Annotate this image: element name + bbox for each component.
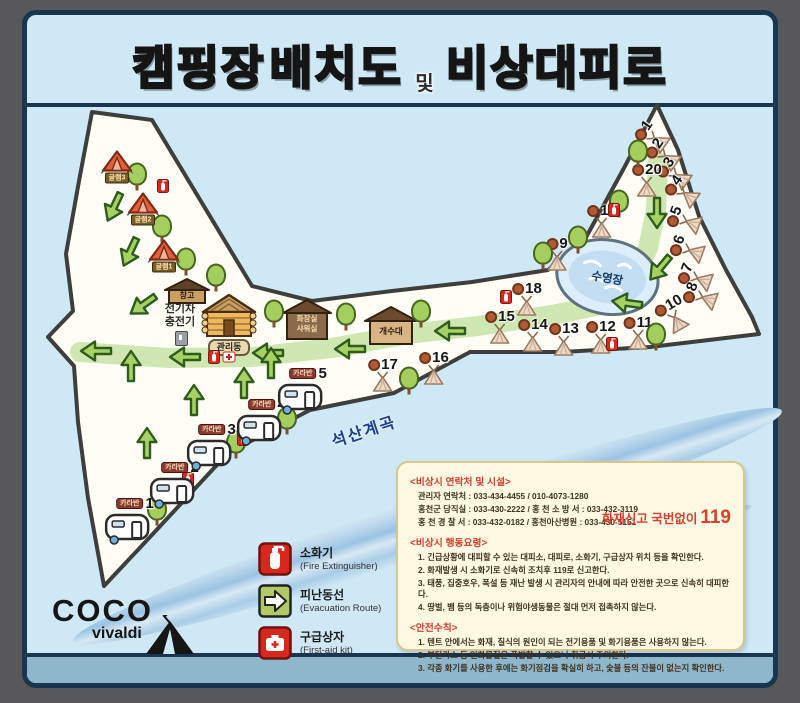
ev-charger-icon [175, 331, 188, 346]
action-line: 1. 긴급상황에 대피할 수 있는 대피소, 대피로, 소화기, 구급상자 위치… [418, 552, 731, 563]
map-stage: 수영장 창고 관리동 화장실 샤워실 [0, 0, 800, 703]
evacuation-route-icon [258, 584, 292, 618]
legend-item-fire-extinguisher: 소화기 (Fire Extinguisher) [258, 542, 381, 576]
fire-extinguisher-icon [258, 542, 292, 576]
legend-item-first-aid: 구급상자 (First-aid kit) [258, 626, 381, 660]
first-aid-icon [258, 626, 292, 660]
legend-fire-en: (Fire Extinguisher) [300, 561, 378, 572]
logo-coco-text: COCO [52, 595, 153, 626]
restroom-label-line1: 화장실 [281, 314, 333, 323]
sink-building: 개수대 [363, 306, 419, 346]
legend-evac-ko: 피난동선 [300, 588, 381, 602]
office-label: 관리동 [208, 339, 251, 356]
legend-fire-ko: 소화기 [300, 546, 378, 560]
ev-charger-label-line1: 전기차 [165, 303, 195, 315]
fire-call-number: 119 [700, 507, 731, 528]
ev-charger-label: 전기차 충전기 [148, 303, 212, 328]
contact-line: 관리자 연락처 : 033-434-4455 / 010-4073-1280 [418, 491, 731, 502]
action-line: 2. 화재발생 시 소화기로 신속히 조치후 119로 신고한다. [418, 565, 731, 576]
restroom-building: 화장실 샤워실 [281, 299, 333, 341]
safety-section-title: <안전수칙> [410, 620, 731, 634]
title-and: 및 [415, 67, 433, 96]
ev-charger-label-line2: 충전기 [165, 316, 195, 328]
action-section-title: <비상시 행동요령> [410, 535, 731, 549]
action-line: 4. 땅벌, 뱀 등의 독충이나 위험야생동물은 절대 먼저 접촉하지 않는다. [418, 602, 731, 613]
restroom-label-line2: 샤워실 [281, 324, 333, 333]
legend-aid-ko: 구급상자 [300, 630, 353, 644]
map-legend: 소화기 (Fire Extinguisher) 피난동선 (Evacuation… [258, 542, 381, 660]
legend-evac-en: (Evacuation Route) [300, 603, 381, 614]
fire-call-label: 화재신고 국번없이 [602, 512, 697, 526]
page-title: 캠핑장 배치도 및 비상대피로 [0, 32, 800, 98]
contact-section-title: <비상시 연락처 및 시설> [410, 474, 731, 488]
legend-aid-en: (First-aid kit) [300, 645, 353, 656]
title-evacuation: 비상대피로 [446, 42, 668, 94]
brand-logo: COCO vivaldi [52, 595, 153, 642]
safety-line: 2. 부탄가스 등 인화물질은 폭발할 수 있으니 취급시 주의한다. [418, 650, 731, 661]
title-campsite: 캠핑장 [132, 42, 265, 94]
logo-tent-icon [140, 615, 198, 655]
sink-label: 개수대 [363, 325, 419, 337]
safety-line: 1. 텐트 안에서는 화재, 질식의 원인이 되는 전기용품 및 화기용품은 사… [418, 637, 731, 648]
legend-item-evacuation: 피난동선 (Evacuation Route) [258, 584, 381, 618]
fire-call-notice: 화재신고 국번없이119 [602, 507, 731, 529]
swimming-pool: 수영장 [545, 227, 668, 332]
action-line: 3. 태풍, 집중호우, 폭설 등 재난 발생 시 관리자의 안내에 따라 안전… [418, 578, 731, 600]
emergency-info-box: <비상시 연락처 및 시설> 관리자 연락처 : 033-434-4455 / … [396, 461, 745, 651]
title-layout: 배치도 [270, 42, 403, 94]
safety-line: 3. 각종 화기를 사용한 후에는 화기점검을 확실히 하고, 숯불 등의 잔불… [418, 663, 731, 674]
